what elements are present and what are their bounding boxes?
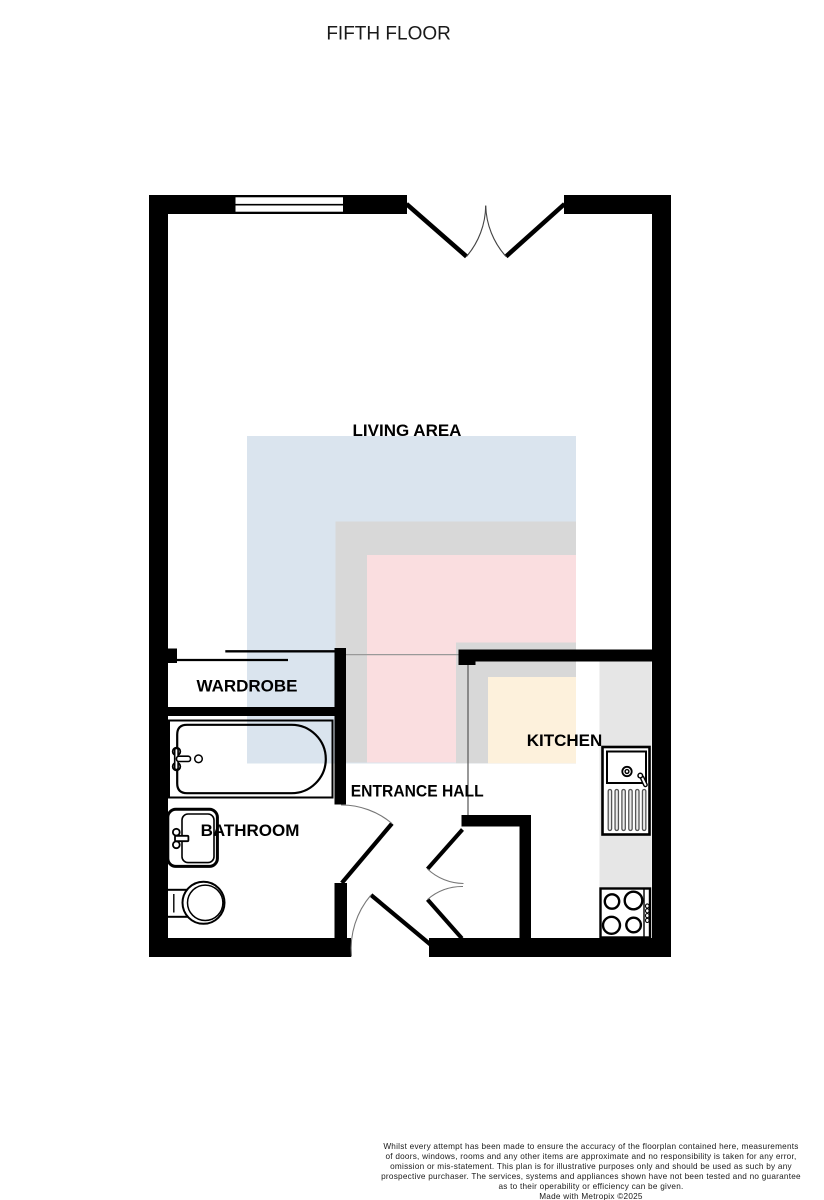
svg-text:WARDROBE: WARDROBE (196, 676, 297, 695)
svg-text:KITCHEN: KITCHEN (527, 731, 603, 750)
svg-text:LIVING AREA: LIVING AREA (353, 421, 462, 440)
svg-text:BATHROOM: BATHROOM (201, 821, 300, 840)
svg-text:FIFTH FLOOR: FIFTH FLOOR (326, 23, 451, 44)
svg-text:ENTRANCE HALL: ENTRANCE HALL (351, 782, 484, 801)
